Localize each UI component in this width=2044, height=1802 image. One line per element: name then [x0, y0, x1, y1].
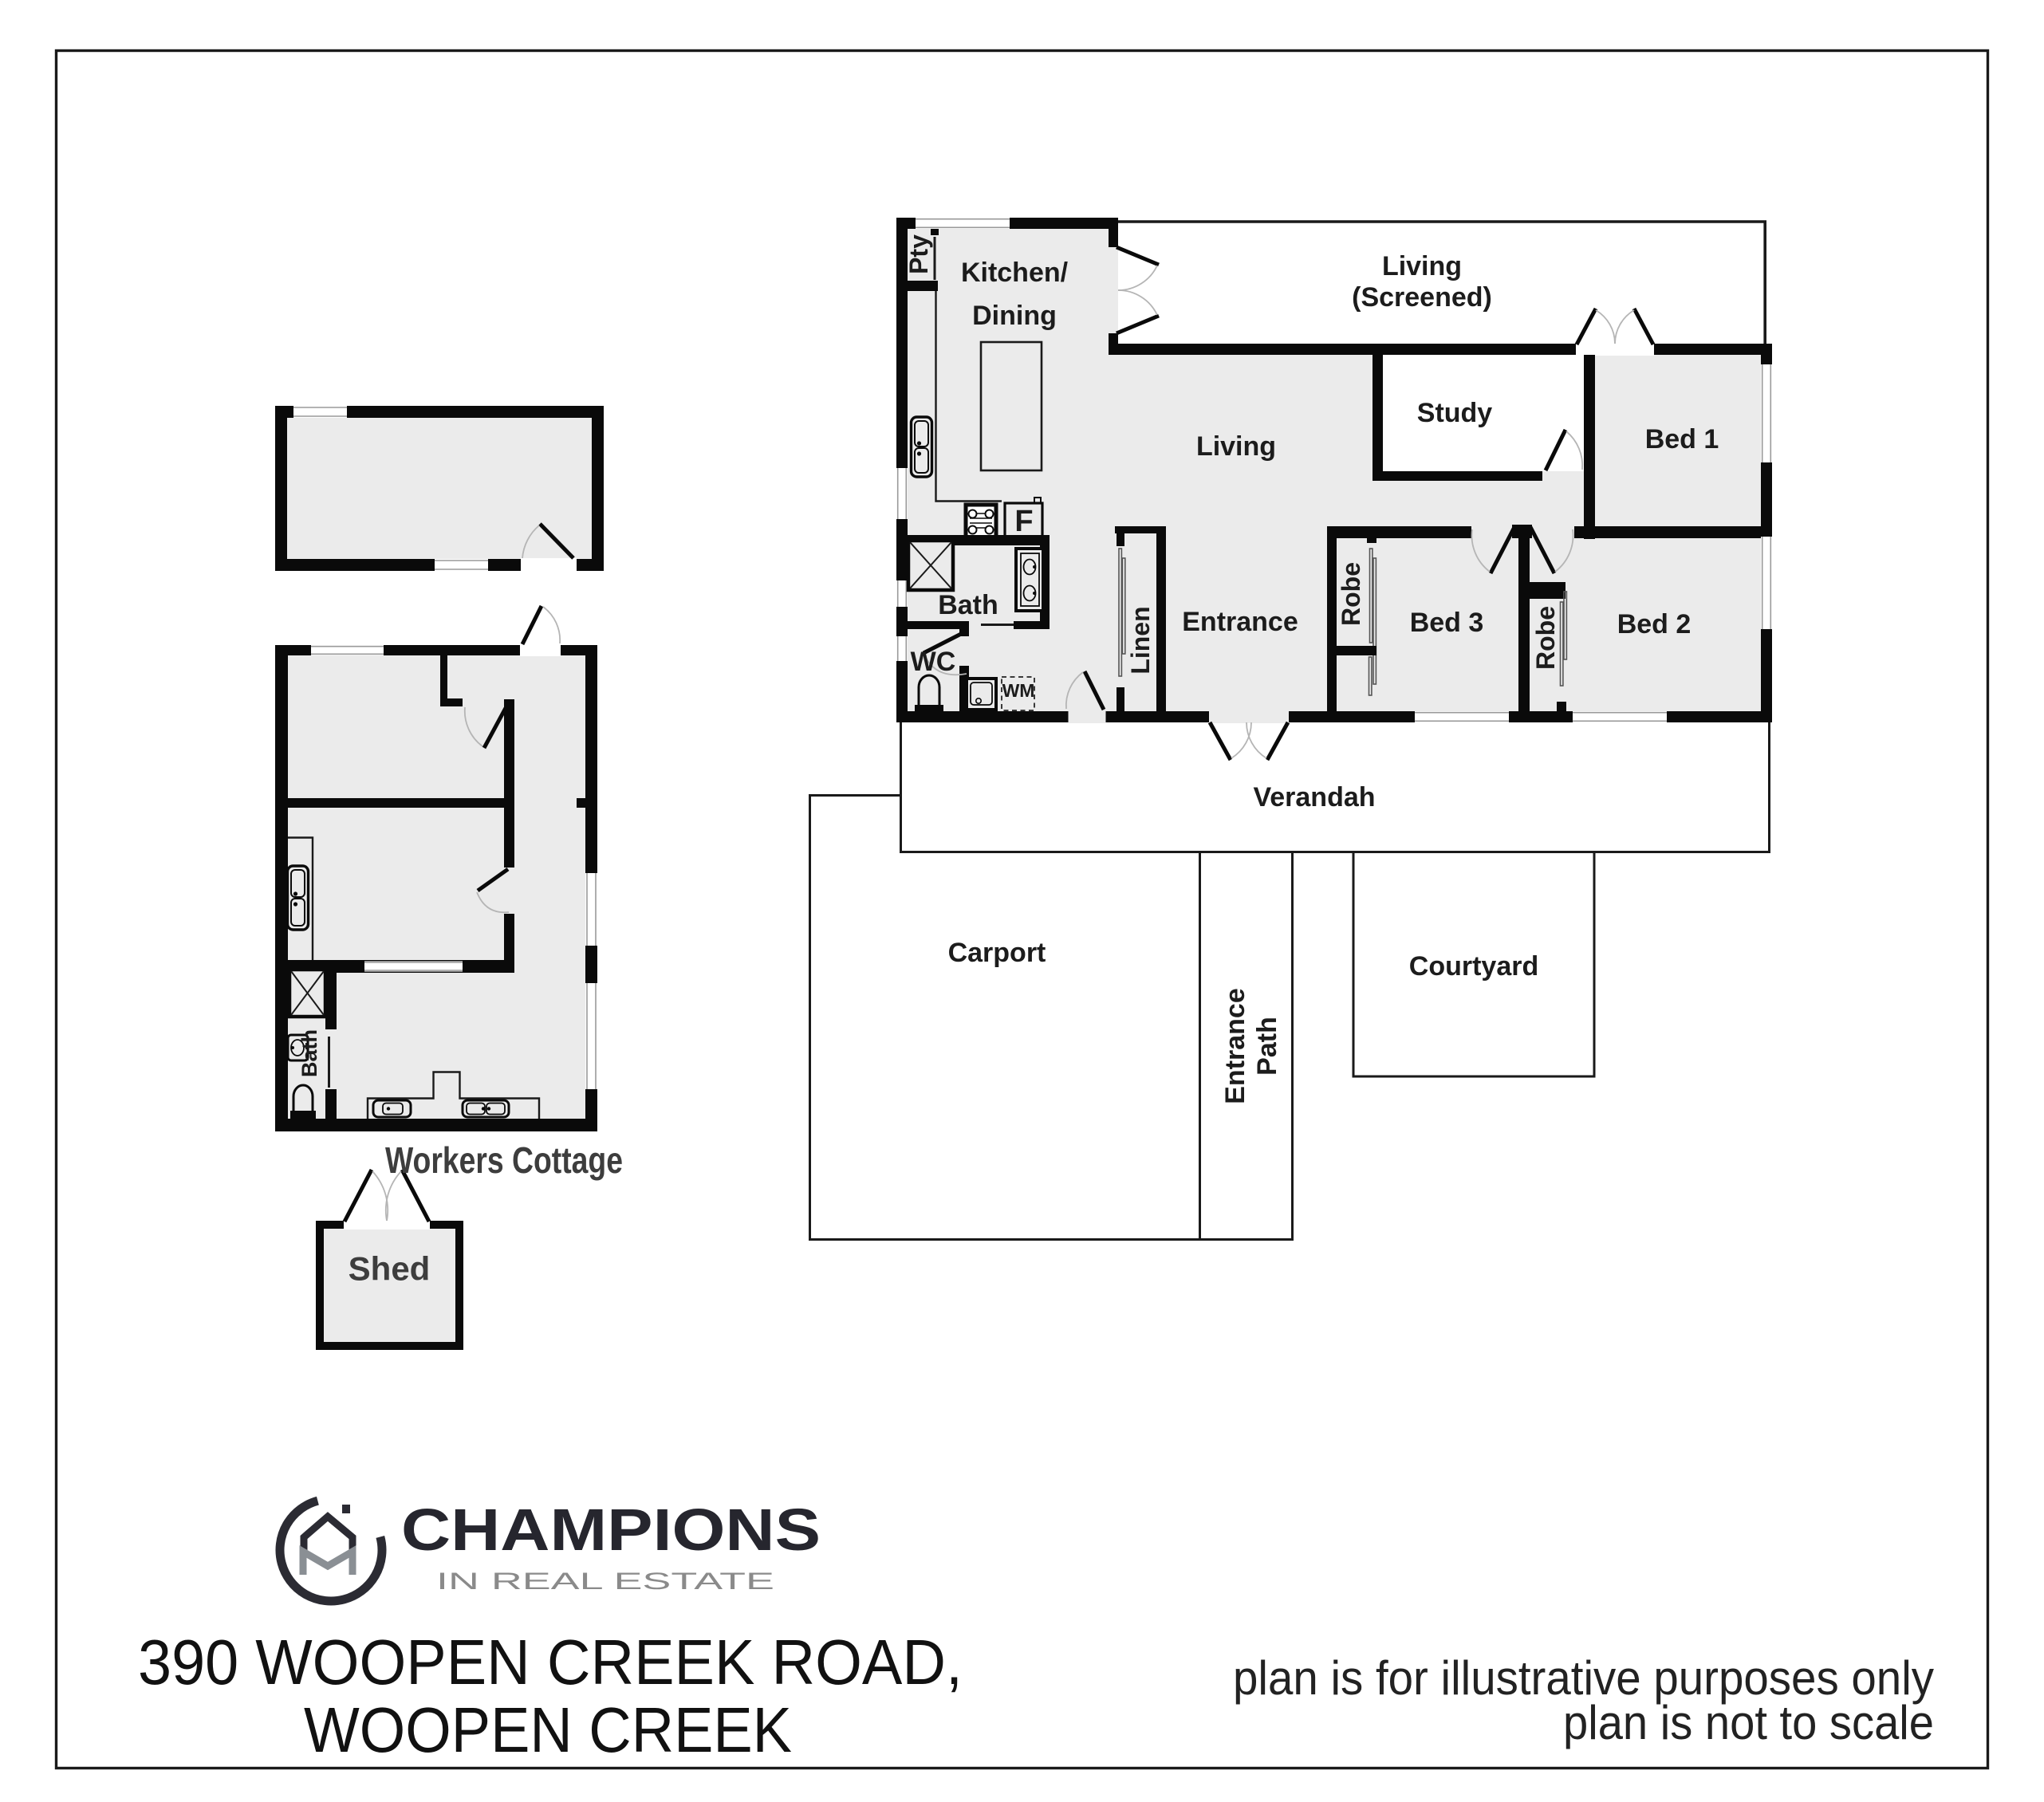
svg-text:Bed 2: Bed 2 — [1617, 609, 1692, 639]
svg-text:Living: Living — [1382, 251, 1462, 281]
svg-text:Workers Cottage: Workers Cottage — [385, 1139, 623, 1181]
svg-text:Living: Living — [1196, 431, 1276, 462]
svg-text:plan is not to scale: plan is not to scale — [1563, 1696, 1934, 1749]
svg-text:Kitchen/: Kitchen/ — [961, 258, 1069, 288]
svg-text:Bed 3: Bed 3 — [1410, 608, 1484, 638]
svg-text:Shed: Shed — [349, 1250, 431, 1288]
svg-text:(Screened): (Screened) — [1352, 282, 1492, 313]
svg-text:Bath: Bath — [297, 1029, 321, 1077]
svg-text:Path: Path — [1252, 1017, 1282, 1076]
svg-text:Study: Study — [1417, 398, 1493, 428]
svg-text:Dining: Dining — [972, 301, 1057, 331]
svg-text:Entrance: Entrance — [1182, 607, 1298, 637]
svg-text:Courtyard: Courtyard — [1409, 951, 1538, 982]
svg-text:Entrance: Entrance — [1220, 988, 1250, 1104]
svg-text:Linen: Linen — [1126, 606, 1155, 674]
svg-text:IN REAL ESTATE: IN REAL ESTATE — [436, 1568, 774, 1595]
svg-text:Robe: Robe — [1337, 562, 1365, 626]
svg-text:Bed 1: Bed 1 — [1645, 424, 1719, 454]
svg-text:F: F — [1014, 505, 1033, 538]
svg-text:CHAMPIONS: CHAMPIONS — [401, 1497, 821, 1563]
svg-text:Robe: Robe — [1531, 606, 1560, 670]
svg-text:390 WOOPEN CREEK ROAD,: 390 WOOPEN CREEK ROAD, — [138, 1627, 963, 1698]
svg-text:Pty: Pty — [904, 234, 933, 274]
svg-text:Bath: Bath — [938, 590, 998, 620]
svg-text:WM: WM — [1002, 680, 1035, 701]
svg-text:WOOPEN CREEK: WOOPEN CREEK — [304, 1694, 792, 1765]
svg-text:Verandah: Verandah — [1253, 782, 1375, 812]
svg-text:Carport: Carport — [948, 938, 1046, 968]
svg-text:WC: WC — [911, 647, 956, 677]
